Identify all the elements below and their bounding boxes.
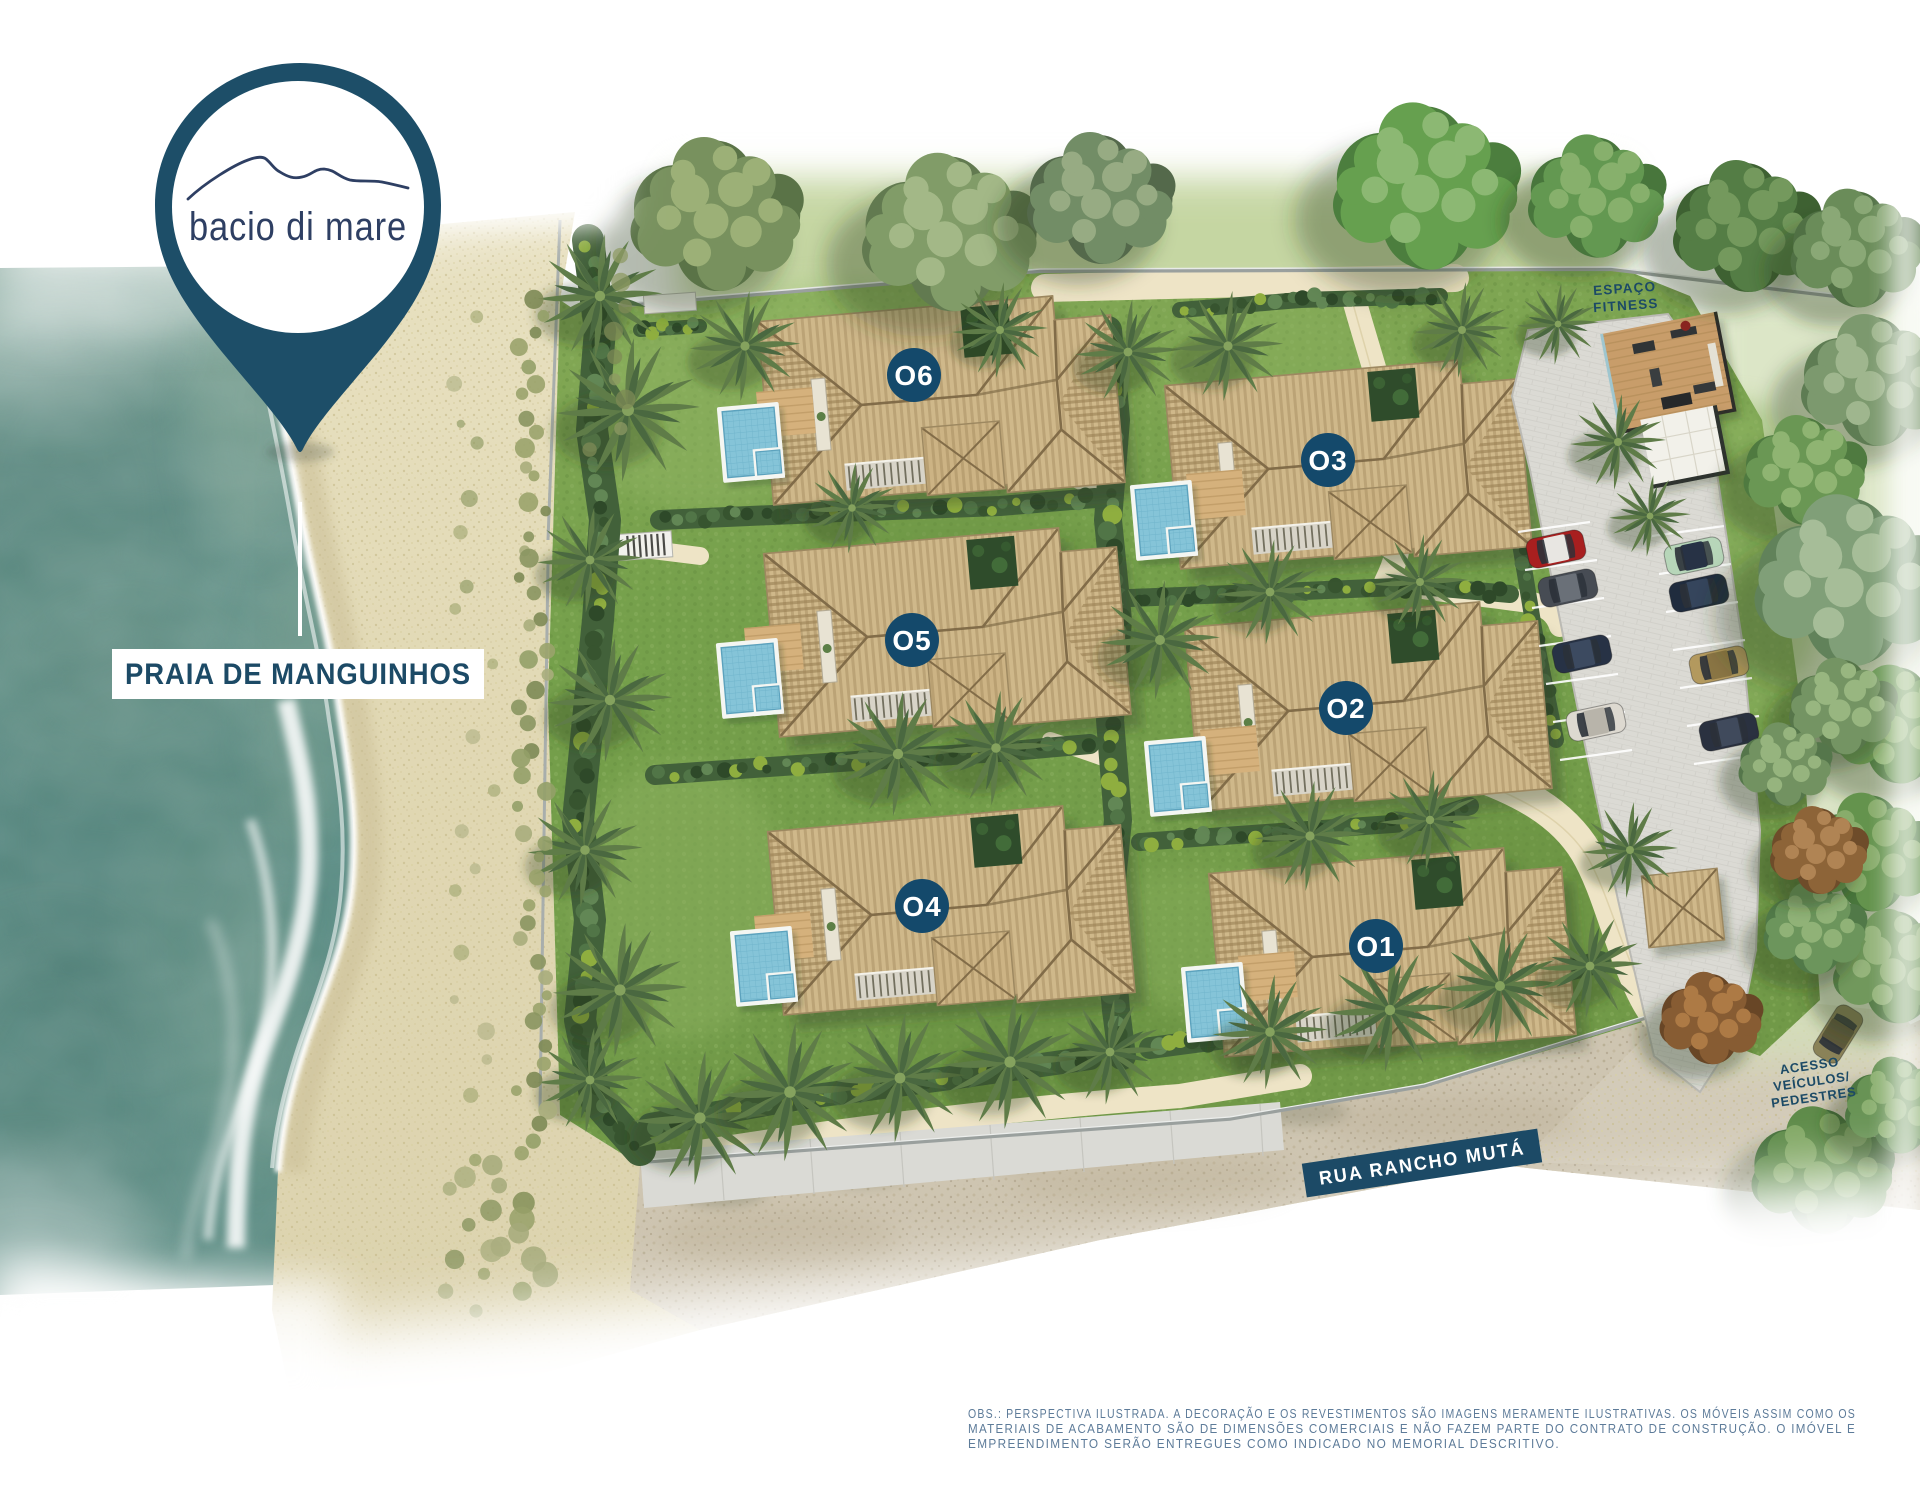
- svg-text:O2: O2: [1326, 693, 1365, 724]
- svg-text:MATERIAIS DE ACABAMENTO SÃO DE: MATERIAIS DE ACABAMENTO SÃO DE DIMENSÕES…: [968, 1421, 1856, 1436]
- svg-text:O5: O5: [892, 625, 931, 656]
- svg-text:OBS.: PERSPECTIVA ILUSTRADA. A: OBS.: PERSPECTIVA ILUSTRADA. A DECORAÇÃO…: [968, 1406, 1856, 1421]
- svg-text:bacio di mare: bacio di mare: [189, 205, 407, 249]
- svg-text:EMPREENDIMENTO SERÃO ENTREGUES: EMPREENDIMENTO SERÃO ENTREGUES COMO INDI…: [968, 1436, 1560, 1451]
- svg-text:O3: O3: [1308, 445, 1347, 476]
- svg-text:O4: O4: [902, 891, 941, 922]
- svg-text:O1: O1: [1356, 931, 1395, 962]
- svg-text:PRAIA DE MANGUINHOS: PRAIA DE MANGUINHOS: [125, 658, 471, 691]
- svg-text:O6: O6: [894, 360, 933, 391]
